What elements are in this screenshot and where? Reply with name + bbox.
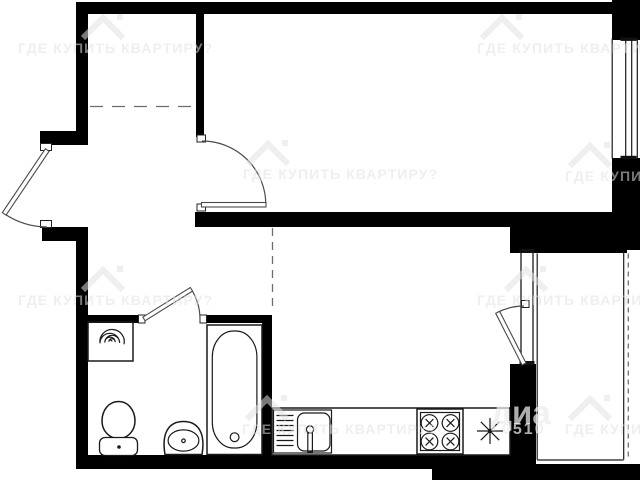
stove	[417, 409, 463, 454]
window	[612, 38, 637, 160]
floor-plan	[0, 0, 640, 480]
entrance-door	[2, 144, 51, 228]
bathtub	[207, 325, 262, 455]
balcony	[537, 252, 628, 461]
light-symbol	[477, 418, 503, 444]
bathroom-door	[139, 287, 207, 323]
floor-plan-image: ГДЕ КУПИТЬ КВАРТИРУ? ГДЕ КУПИТЬ КВАРТИРУ…	[0, 0, 640, 480]
pedestal-sink	[164, 422, 203, 455]
toilet	[100, 402, 138, 456]
hall-door	[197, 135, 266, 211]
kitchen-sink	[274, 410, 332, 453]
washing-machine	[88, 322, 133, 361]
kitchen-counter	[272, 408, 510, 455]
balcony-door-block	[496, 249, 535, 365]
guide-dashed-lines	[90, 107, 273, 312]
burners	[421, 415, 459, 450]
